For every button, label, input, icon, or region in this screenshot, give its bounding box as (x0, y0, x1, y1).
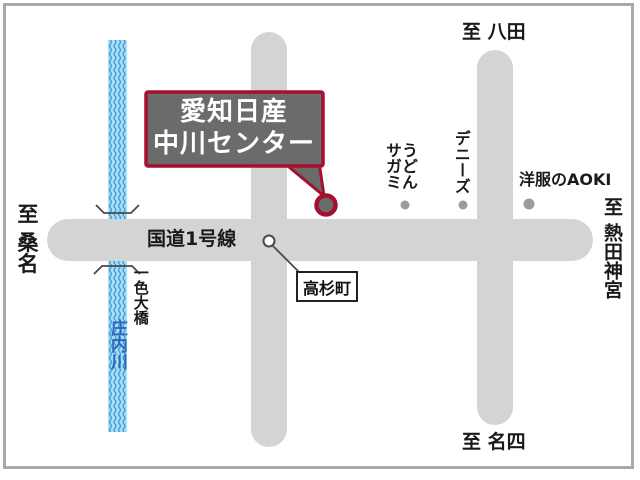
intersection-label-box: 高杉町 (296, 271, 358, 302)
road-route1 (47, 219, 593, 261)
intersection-label: 高杉町 (303, 275, 351, 299)
river-name-label: 庄内川 (107, 319, 125, 370)
route1-road-label: 国道1号線 (147, 230, 236, 250)
poi-label-udon-sagami: うどん サガミ (384, 142, 416, 190)
destination-callout-label: 愛知日産 中川センター (148, 97, 320, 160)
poi-label-dennys: デニーズ (452, 130, 469, 194)
poi-dot-dennys (459, 201, 468, 210)
intersection-circle (264, 236, 275, 247)
direction-label-hatta: 至 八田 (462, 23, 526, 43)
bridge-name-label: 一色大橋 (132, 265, 148, 325)
direction-label-kuwana: 至 桑名 (16, 203, 38, 273)
direction-label-meishi: 至 名四 (462, 433, 526, 453)
map-canvas (0, 0, 640, 480)
poi-dot-aoki (524, 199, 535, 210)
map-screenshot: 愛知日産 中川センター 国道1号線 高杉町 至 桑名 至 八田 至 熱田神宮 至… (0, 0, 640, 480)
poi-dot-udon-sagami (401, 201, 410, 210)
direction-label-atsuta-jingu: 至 熱田神宮 (601, 197, 621, 299)
poi-label-aoki: 洋服のAOKI (519, 172, 611, 189)
